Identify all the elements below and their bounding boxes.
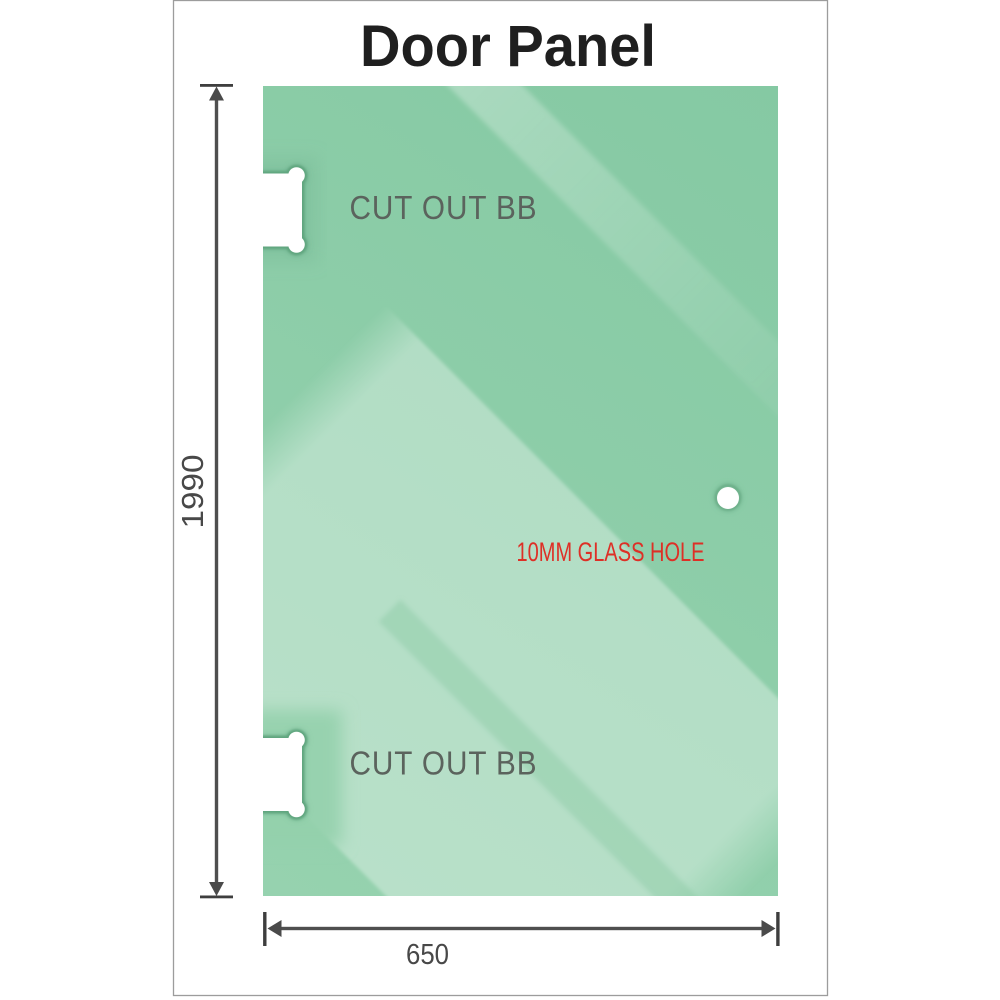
- svg-text:CUT OUT BB: CUT OUT BB: [350, 189, 538, 226]
- svg-text:650: 650: [406, 939, 449, 971]
- svg-text:Door Panel: Door Panel: [360, 14, 656, 79]
- svg-text:1990: 1990: [175, 455, 210, 529]
- svg-text:CUT OUT BB: CUT OUT BB: [350, 744, 538, 781]
- svg-text:10MM GLASS HOLE: 10MM GLASS HOLE: [517, 537, 705, 567]
